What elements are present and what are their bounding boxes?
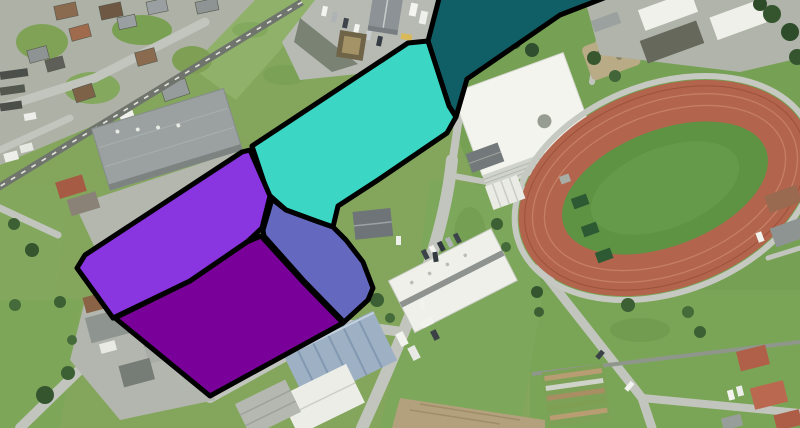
- brown-roof-building: [336, 30, 367, 61]
- center-house: [353, 208, 394, 240]
- aerial-basemap[interactable]: [0, 0, 800, 428]
- parked-car: [396, 236, 401, 245]
- allotment-gardens: [542, 364, 611, 428]
- map-viewport[interactable]: [0, 0, 800, 428]
